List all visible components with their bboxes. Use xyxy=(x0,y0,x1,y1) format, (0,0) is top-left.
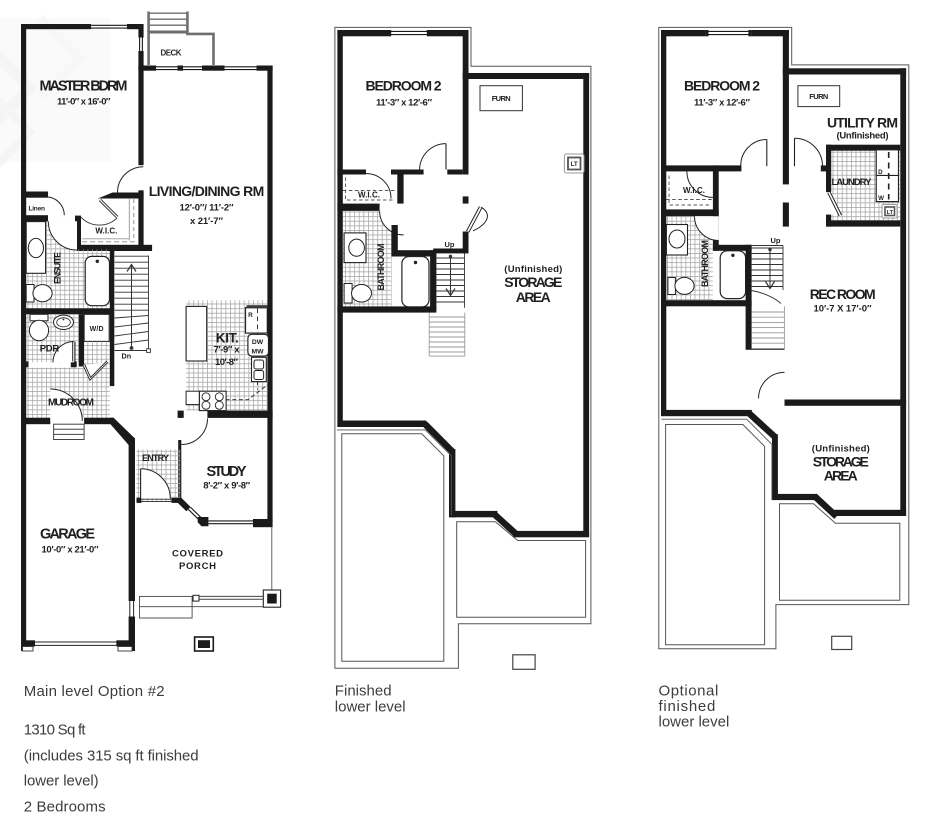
svg-text:(includes 315 sq ft finished: (includes 315 sq ft finished xyxy=(24,747,199,764)
svg-text:AREA: AREA xyxy=(516,289,551,305)
svg-text:BATHROOM: BATHROOM xyxy=(700,240,710,287)
svg-text:Main level Option #2: Main level Option #2 xyxy=(24,683,165,700)
svg-text:STORAGE: STORAGE xyxy=(504,274,562,290)
svg-text:GARAGE: GARAGE xyxy=(40,527,95,543)
svg-text:BEDROOM 2: BEDROOM 2 xyxy=(684,78,760,94)
svg-text:LAUNDRY: LAUNDRY xyxy=(832,177,873,188)
svg-text:Dn: Dn xyxy=(122,352,132,361)
svg-text:ENSUITE: ENSUITE xyxy=(53,252,63,284)
svg-text:UTILITY RM: UTILITY RM xyxy=(827,115,898,131)
svg-text:W.I.C.: W.I.C. xyxy=(358,191,380,200)
svg-text:LT: LT xyxy=(571,162,578,168)
svg-text:DECK: DECK xyxy=(161,49,182,58)
svg-text:1310 Sq ft: 1310 Sq ft xyxy=(24,722,87,739)
svg-text:W: W xyxy=(878,195,884,202)
svg-text:R: R xyxy=(248,312,253,319)
svg-text:11′-3″ x 12′-6″: 11′-3″ x 12′-6″ xyxy=(694,98,750,109)
svg-text:PDR: PDR xyxy=(40,344,60,355)
svg-text:MUDROOM: MUDROOM xyxy=(48,398,94,409)
svg-text:LIVING/DINING RM: LIVING/DINING RM xyxy=(149,183,265,199)
svg-text:BEDROOM 2: BEDROOM 2 xyxy=(366,78,442,94)
svg-text:lower level): lower level) xyxy=(24,773,99,790)
svg-text:MW: MW xyxy=(251,349,264,356)
svg-text:MASTER BDRM: MASTER BDRM xyxy=(40,79,128,95)
svg-text:lower level: lower level xyxy=(335,698,406,715)
svg-text:D: D xyxy=(878,169,883,176)
svg-text:DW: DW xyxy=(252,339,264,346)
svg-text:Up: Up xyxy=(771,236,781,245)
svg-text:12′-0″/ 11′-2″: 12′-0″/ 11′-2″ xyxy=(180,203,234,214)
svg-text:8′-2″ x 9′-8″: 8′-2″ x 9′-8″ xyxy=(203,481,250,492)
svg-text:Linen: Linen xyxy=(28,206,45,213)
svg-text:11′-0″ x 16′-0″: 11′-0″ x 16′-0″ xyxy=(57,97,111,108)
svg-text:Finished: Finished xyxy=(335,683,392,700)
svg-text:W.I.C.: W.I.C. xyxy=(95,227,117,236)
svg-text:Up: Up xyxy=(445,240,455,249)
svg-text:FURN: FURN xyxy=(809,92,828,101)
svg-text:W/D: W/D xyxy=(90,326,104,333)
svg-text:10′-7 X 17′-0″: 10′-7 X 17′-0″ xyxy=(814,304,872,315)
svg-text:LT: LT xyxy=(887,210,894,216)
svg-text:2 Bedrooms: 2 Bedrooms xyxy=(24,798,106,815)
svg-text:(Unfinished): (Unfinished) xyxy=(837,131,889,142)
svg-text:7′-9″ x: 7′-9″ x xyxy=(214,345,241,356)
svg-text:AREA: AREA xyxy=(824,468,858,484)
svg-text:10′-8″: 10′-8″ xyxy=(215,357,238,368)
svg-text:PORCH: PORCH xyxy=(179,561,216,572)
svg-text:COVERED: COVERED xyxy=(172,549,223,560)
svg-text:finished: finished xyxy=(659,698,716,715)
svg-text:ENTRY: ENTRY xyxy=(142,453,169,463)
svg-text:Optional: Optional xyxy=(659,683,719,700)
svg-text:W.I.C.: W.I.C. xyxy=(683,186,705,195)
svg-text:x 21′-7″: x 21′-7″ xyxy=(190,216,223,227)
svg-text:10′-0″ x 21′-0″: 10′-0″ x 21′-0″ xyxy=(42,545,99,556)
svg-text:STUDY: STUDY xyxy=(207,464,247,480)
svg-text:lower level: lower level xyxy=(659,714,730,731)
svg-text:REC ROOM: REC ROOM xyxy=(810,286,876,302)
svg-text:KIT.: KIT. xyxy=(216,331,239,346)
svg-text:BATHROOM: BATHROOM xyxy=(376,244,386,291)
svg-text:11′-3″ x 12′-6″: 11′-3″ x 12′-6″ xyxy=(376,98,432,109)
svg-text:FURN: FURN xyxy=(492,94,511,103)
